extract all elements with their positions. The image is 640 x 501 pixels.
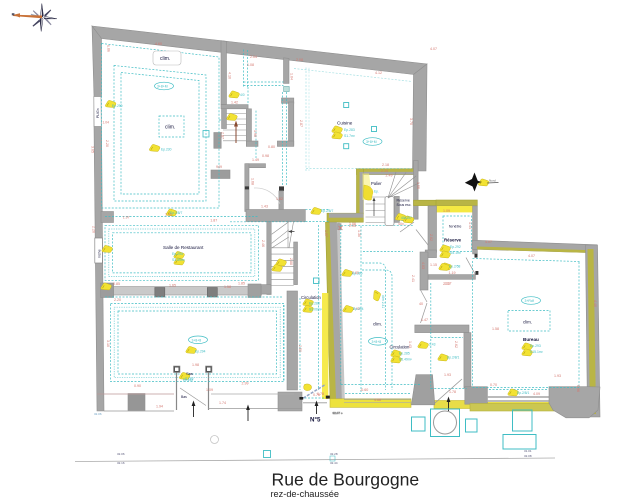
svg-text:2.87: 2.87 [221, 132, 225, 139]
svg-text:Palier: Palier [371, 181, 382, 186]
svg-text:32.06: 32.06 [94, 412, 102, 416]
svg-text:4.07: 4.07 [430, 47, 437, 51]
svg-text:clim.: clim. [523, 320, 532, 325]
svg-text:3+8+8: 3+8+8 [372, 340, 382, 344]
svg-text:3+8+M: 3+8+M [366, 140, 377, 144]
svg-text:2.46: 2.46 [261, 240, 265, 247]
svg-text:32.07 +: 32.07 + [333, 411, 343, 415]
svg-text:Ep.294: Ep.294 [172, 252, 183, 256]
svg-text:40x197: 40x197 [401, 216, 412, 220]
svg-text:0.80: 0.80 [268, 145, 275, 149]
svg-text:1.62: 1.62 [276, 197, 283, 201]
svg-text:3.70: 3.70 [409, 118, 413, 125]
svg-text:Ep.230: Ep.230 [161, 148, 172, 152]
svg-text:1.43: 1.43 [408, 341, 412, 348]
svg-text:S15.1m²: S15.1m² [530, 350, 544, 354]
svg-text:2.20: 2.20 [92, 226, 96, 233]
svg-text:Salle de Restaurant: Salle de Restaurant [163, 245, 204, 250]
svg-text:Ep.: Ep. [374, 190, 379, 194]
svg-text:Ep.292: Ep.292 [450, 245, 461, 249]
svg-text:1.09: 1.09 [443, 209, 450, 213]
svg-text:0.70: 0.70 [490, 383, 497, 387]
svg-text:2.99: 2.99 [242, 382, 249, 386]
svg-text:fenêtre: fenêtre [449, 224, 462, 229]
svg-text:4.12: 4.12 [375, 71, 382, 75]
svg-text:5.06: 5.06 [106, 45, 111, 52]
svg-text:Ep.294: Ep.294 [353, 307, 364, 311]
svg-text:1.09: 1.09 [206, 388, 213, 392]
svg-text:4.09: 4.09 [533, 392, 540, 396]
svg-text:1.58: 1.58 [492, 327, 499, 331]
svg-text:Ep.290: Ep.290 [112, 104, 123, 108]
svg-text:4.60: 4.60 [155, 42, 162, 46]
svg-text:4.68: 4.68 [374, 398, 381, 402]
svg-text:2.20: 2.20 [105, 140, 109, 147]
svg-text:rez-de-chaussée: rez-de-chaussée [271, 489, 339, 499]
svg-text:4.07: 4.07 [528, 254, 535, 258]
svg-text:Ep.285: Ep.285 [352, 272, 363, 276]
svg-text:2.49: 2.49 [386, 174, 393, 178]
svg-text:Ep.2/8/1: Ep.2/8/1 [447, 356, 459, 360]
svg-text:Ep.2/8/7: Ep.2/8/7 [170, 211, 182, 215]
svg-text:PL/Gn: PL/Gn [96, 108, 100, 118]
svg-text:2.50: 2.50 [298, 345, 302, 352]
svg-text:1.97: 1.97 [324, 230, 328, 237]
svg-text:1.08: 1.08 [247, 63, 254, 67]
svg-text:Ep.2/8/1: Ep.2/8/1 [517, 391, 529, 395]
svg-text:S3.06m²: S3.06m² [309, 308, 323, 312]
svg-text:1.55: 1.55 [416, 182, 420, 189]
svg-text:1.87: 1.87 [210, 219, 217, 223]
svg-text:1.98: 1.98 [253, 130, 257, 137]
svg-text:S1.02: S1.02 [185, 377, 194, 381]
svg-text:S5.1m²: S5.1m² [450, 251, 462, 255]
svg-text:clim.: clim. [160, 56, 170, 62]
svg-text:32.28: 32.28 [330, 452, 338, 456]
svg-text:S5.49m²: S5.49m² [399, 358, 413, 362]
svg-text:Ep.294: Ep.294 [195, 350, 206, 354]
svg-text:1.68: 1.68 [251, 178, 255, 185]
svg-text:2.20: 2.20 [114, 298, 121, 302]
svg-text:Bureau: Bureau [523, 337, 539, 342]
svg-text:1.42: 1.42 [231, 101, 238, 105]
svg-text:Ep.293: Ep.293 [530, 344, 541, 348]
svg-text:Ep.288: Ep.288 [309, 302, 320, 306]
svg-text:clim 2.41: clim 2.41 [381, 295, 385, 308]
svg-text:0.78: 0.78 [317, 392, 324, 396]
svg-text:1.49: 1.49 [252, 158, 259, 162]
svg-text:32.16: 32.16 [117, 461, 125, 465]
svg-text:32.08: 32.08 [524, 454, 532, 458]
svg-text:1.06: 1.06 [349, 222, 356, 226]
svg-text:4.03: 4.03 [421, 262, 425, 269]
svg-text:3.05: 3.05 [91, 146, 95, 153]
svg-text:4.40: 4.40 [593, 300, 597, 307]
svg-text:1.30: 1.30 [357, 230, 361, 237]
svg-text:2.08: 2.08 [296, 58, 303, 62]
svg-text:Réserve: Réserve [444, 238, 462, 243]
svg-text:2.04: 2.04 [250, 55, 257, 59]
svg-text:1.44: 1.44 [468, 222, 472, 229]
svg-text:1.43: 1.43 [429, 343, 436, 347]
svg-text:0.90: 0.90 [134, 384, 141, 388]
svg-text:1.97: 1.97 [123, 215, 130, 219]
svg-text:clim.: clim. [373, 322, 382, 327]
svg-text:1.15: 1.15 [430, 263, 437, 267]
svg-text:Circulation: Circulation [301, 295, 321, 300]
svg-text:S1.7m²: S1.7m² [344, 134, 356, 138]
svg-text:949: 949 [216, 165, 222, 169]
svg-text:Cuisine: Cuisine [337, 121, 353, 126]
svg-text:1.65: 1.65 [169, 284, 176, 288]
svg-text:1.85: 1.85 [238, 282, 245, 286]
svg-text:Ep.283: Ep.283 [344, 128, 355, 132]
svg-text:1.74: 1.74 [219, 401, 226, 405]
svg-text:0.96: 0.96 [576, 385, 580, 392]
svg-text:1.47: 1.47 [421, 318, 428, 322]
svg-text:4.10: 4.10 [228, 72, 232, 79]
svg-text:Ep.2/8/7: Ep.2/8/7 [321, 209, 333, 213]
svg-text:1.93: 1.93 [444, 373, 451, 377]
svg-text:Réserve: Réserve [397, 199, 410, 203]
svg-text:3+8+M: 3+8+M [157, 85, 168, 89]
svg-text:40x...: 40x... [398, 222, 407, 226]
svg-text:Circulation: Circulation [390, 345, 410, 350]
svg-text:S3.59m²: S3.59m² [172, 258, 186, 262]
svg-text:4.07: 4.07 [485, 240, 492, 244]
svg-text:Sous esc.: Sous esc. [397, 203, 412, 207]
svg-text:2.14: 2.14 [381, 169, 388, 173]
svg-text:40: 40 [419, 302, 423, 306]
svg-text:Bas: Bas [181, 395, 187, 399]
svg-text:clim.: clim. [165, 125, 175, 131]
svg-text:32.06: 32.06 [117, 452, 125, 456]
svg-text:Sas: Sas [186, 371, 193, 376]
svg-text:32.44: 32.44 [330, 461, 338, 465]
svg-text:3+Rdf: 3+Rdf [525, 299, 534, 303]
svg-text:2.01: 2.01 [443, 282, 450, 286]
svg-text:4/0: 4/0 [240, 93, 245, 97]
svg-text:2.02: 2.02 [429, 234, 433, 241]
svg-text:Ep.285: Ep.285 [399, 352, 410, 356]
svg-text:-0.60: -0.60 [360, 388, 368, 392]
svg-text:niche: niche [98, 249, 102, 258]
svg-text:2.18: 2.18 [382, 163, 389, 167]
svg-text:0.98: 0.98 [262, 154, 269, 158]
svg-text:1.93: 1.93 [554, 374, 561, 378]
svg-text:1.04: 1.04 [103, 121, 110, 125]
svg-text:Ep.2/58: Ep.2/58 [449, 265, 461, 269]
svg-text:3.10: 3.10 [106, 340, 110, 347]
svg-text:1.19: 1.19 [449, 271, 456, 275]
svg-text:Rue de Bourgogne: Rue de Bourgogne [272, 470, 420, 490]
svg-text:2.62: 2.62 [454, 341, 458, 348]
svg-text:N°5: N°5 [310, 417, 321, 424]
svg-text:1.58: 1.58 [224, 285, 231, 289]
svg-text:1.04: 1.04 [290, 73, 294, 80]
svg-text:1.94: 1.94 [156, 405, 163, 409]
svg-text:Nord: Nord [489, 179, 496, 183]
svg-text:1.78: 1.78 [449, 390, 456, 394]
svg-text:2.41: 2.41 [411, 275, 415, 282]
svg-text:31.01: 31.01 [524, 449, 532, 453]
svg-text:0.85: 0.85 [113, 282, 120, 286]
svg-text:2.87: 2.87 [299, 120, 303, 127]
svg-text:3+8+8: 3+8+8 [192, 338, 202, 342]
svg-text:1.43: 1.43 [261, 205, 268, 209]
svg-text:1.98: 1.98 [192, 363, 199, 367]
svg-text:2.88: 2.88 [289, 258, 293, 265]
